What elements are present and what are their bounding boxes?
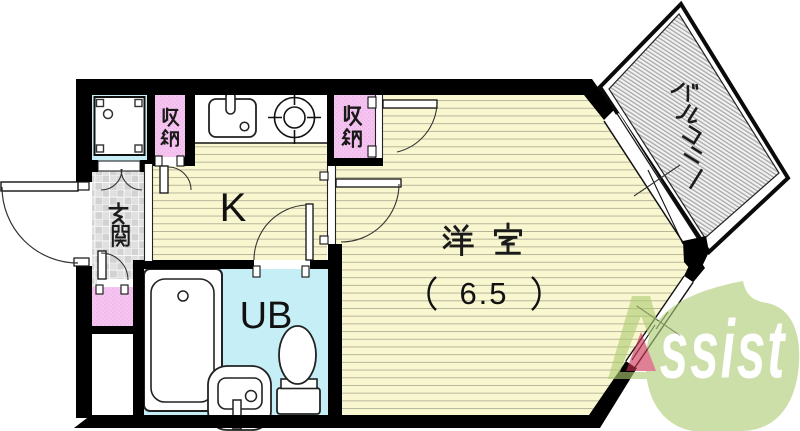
svg-text:UB: UB — [240, 295, 293, 337]
svg-text:K: K — [220, 186, 247, 230]
svg-text:6.5: 6.5 — [459, 276, 508, 311]
svg-text:ssist: ssist — [660, 302, 787, 396]
